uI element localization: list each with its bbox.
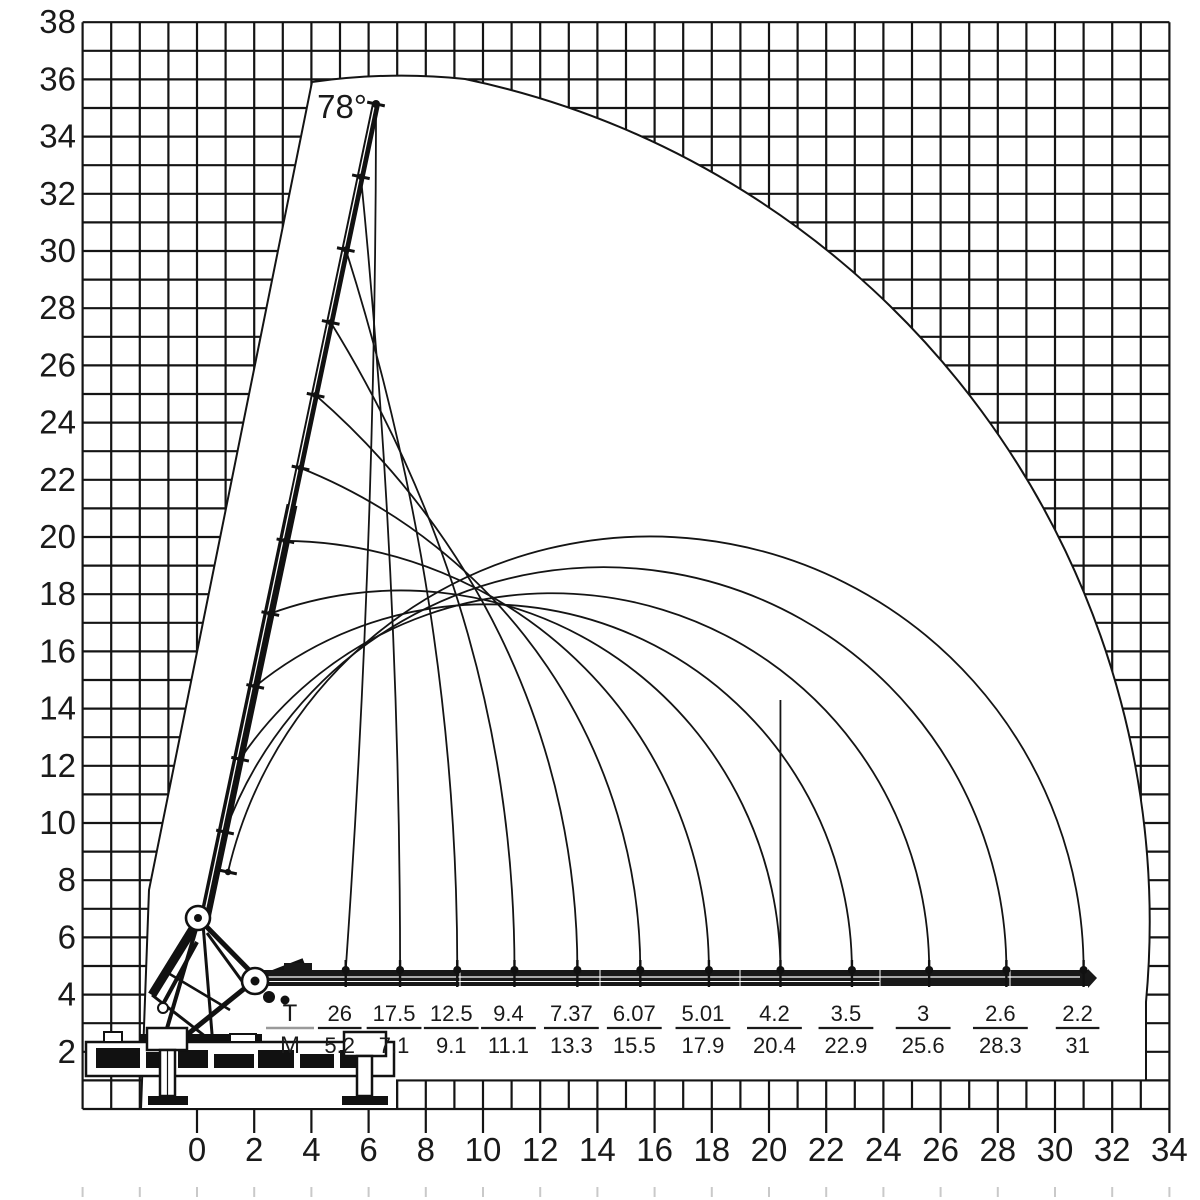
x-axis-tick-label: 16 <box>636 1131 673 1168</box>
boom-tip-dot <box>372 100 380 108</box>
chassis-machinery <box>178 1050 208 1068</box>
y-axis-tick-label: 30 <box>39 232 76 269</box>
outreach-value-metres: 7.1 <box>379 1033 410 1058</box>
y-axis-tick-label: 32 <box>39 175 76 212</box>
load-table-header-t: T <box>283 1000 298 1027</box>
load-value-tonnes: 9.4 <box>493 1001 524 1026</box>
x-axis-tick-label: 6 <box>359 1131 377 1168</box>
y-axis-tick-label: 2 <box>58 1033 76 1070</box>
y-axis-tick-label: 26 <box>39 346 76 383</box>
chassis-machinery <box>96 1048 140 1068</box>
outreach-value-metres: 13.3 <box>550 1033 593 1058</box>
y-axis-labels: 3836343230282624222018161412108642 <box>39 3 76 1070</box>
x-axis-tick-label: 20 <box>751 1131 788 1168</box>
cylinder-anchor-pin <box>158 1003 168 1013</box>
x-axis-tick-label: 26 <box>922 1131 959 1168</box>
outreach-dot <box>925 966 933 974</box>
boom-section-dot <box>343 246 349 252</box>
boom-section-dot <box>252 683 258 689</box>
y-axis-tick-label: 14 <box>39 690 76 727</box>
outreach-value-metres: 25.6 <box>902 1033 945 1058</box>
y-axis-tick-label: 36 <box>39 60 76 97</box>
x-axis-tick-label: 2 <box>245 1131 263 1168</box>
load-value-tonnes: 2.6 <box>985 1001 1016 1026</box>
x-axis-tick-label: 4 <box>302 1131 320 1168</box>
boom-section-dot <box>225 869 231 875</box>
outreach-value-metres: 9.1 <box>436 1033 467 1058</box>
knuckle-pin-center <box>251 977 260 986</box>
y-axis-tick-label: 34 <box>39 118 76 155</box>
outreach-dot <box>1080 966 1088 974</box>
outreach-dot <box>573 966 581 974</box>
boom-section-dot <box>297 465 303 471</box>
load-value-tonnes: 17.5 <box>373 1001 416 1026</box>
load-value-tonnes: 2.2 <box>1062 1001 1093 1026</box>
y-axis-tick-label: 38 <box>39 3 76 40</box>
outreach-dot <box>636 966 644 974</box>
outreach-value-metres: 28.3 <box>979 1033 1022 1058</box>
y-axis-tick-label: 22 <box>39 461 76 498</box>
angle-label-group: 78° <box>317 88 367 125</box>
x-axis-tick-label: 0 <box>188 1131 206 1168</box>
outreach-dot <box>705 966 713 974</box>
jib-boom <box>258 970 1088 986</box>
outreach-value-metres: 11.1 <box>488 1033 529 1058</box>
x-axis-tick-label: 32 <box>1094 1131 1131 1168</box>
y-axis-tick-label: 20 <box>39 518 76 555</box>
outrigger-right-jack <box>357 1056 372 1096</box>
load-value-tonnes: 3 <box>917 1001 929 1026</box>
x-axis-tick-label: 24 <box>865 1131 902 1168</box>
chassis-machinery <box>214 1054 254 1068</box>
outreach-value-metres: 17.9 <box>682 1033 725 1058</box>
x-axis-tick-label: 12 <box>522 1131 559 1168</box>
boom-section-dot <box>358 174 364 180</box>
load-value-tonnes: 4.2 <box>759 1001 790 1026</box>
crane-working-range-diagram: 78°3836343230282624222018161412108642024… <box>0 0 1200 1200</box>
x-axis-tick-label: 18 <box>693 1131 730 1168</box>
y-axis-tick-label: 8 <box>58 861 76 898</box>
x-axis-tick-label: 10 <box>465 1131 502 1168</box>
outreach-dot <box>453 966 461 974</box>
x-axis-tick-label: 14 <box>579 1131 616 1168</box>
x-axis-tick-label: 8 <box>417 1131 435 1168</box>
outreach-value-metres: 5.2 <box>324 1033 355 1058</box>
boom-section-dot <box>267 610 273 616</box>
boom-section-dot <box>328 319 334 325</box>
y-axis-tick-label: 12 <box>39 747 76 784</box>
boom-angle-label: 78° <box>317 88 367 125</box>
x-axis-tick-label: 28 <box>979 1131 1016 1168</box>
load-value-tonnes: 7.37 <box>550 1001 593 1026</box>
boom-section-dot <box>282 538 288 544</box>
x-axis-labels: 0246810121416182022242628303234 <box>188 1109 1188 1168</box>
boom-section-dot <box>222 829 228 835</box>
outreach-dot <box>342 966 350 974</box>
outreach-value-metres: 15.5 <box>613 1033 656 1058</box>
boom-section-dot <box>237 756 243 762</box>
x-axis-tick-label: 22 <box>808 1131 845 1168</box>
outrigger-right-foot <box>342 1096 388 1105</box>
load-value-tonnes: 12.5 <box>430 1001 473 1026</box>
x-axis-tick-label: 30 <box>1037 1131 1074 1168</box>
load-value-tonnes: 26 <box>327 1001 351 1026</box>
load-value-tonnes: 3.5 <box>831 1001 862 1026</box>
y-axis-tick-label: 4 <box>58 976 76 1013</box>
y-axis-tick-label: 18 <box>39 575 76 612</box>
chassis-detail-2 <box>230 1034 256 1042</box>
load-table-header-m: M <box>280 1032 300 1059</box>
jib-heel-block <box>284 963 312 971</box>
y-axis-tick-label: 16 <box>39 632 76 669</box>
y-axis-tick-label: 10 <box>39 804 76 841</box>
hook-pulley <box>263 991 275 1003</box>
outreach-dot <box>776 966 784 974</box>
outreach-value-metres: 31 <box>1065 1033 1089 1058</box>
outreach-value-metres: 20.4 <box>753 1033 796 1058</box>
outrigger-left-box <box>147 1028 187 1050</box>
outrigger-left-foot <box>148 1096 188 1105</box>
y-axis-tick-label: 6 <box>58 918 76 955</box>
crane-load-diagram-page: 78°3836343230282624222018161412108642024… <box>0 0 1200 1200</box>
outreach-dot <box>396 966 404 974</box>
main-pivot-center <box>194 914 202 922</box>
x-axis-tick-label: 34 <box>1151 1131 1188 1168</box>
boom-section-dot <box>312 392 318 398</box>
outreach-dot <box>848 966 856 974</box>
bottom-faint-marks <box>83 1187 1170 1197</box>
y-axis-tick-label: 28 <box>39 289 76 326</box>
chassis-detail <box>104 1032 122 1042</box>
load-value-tonnes: 5.01 <box>682 1001 725 1026</box>
outreach-value-metres: 22.9 <box>825 1033 868 1058</box>
y-axis-tick-label: 24 <box>39 404 76 441</box>
outreach-dot <box>1002 966 1010 974</box>
outreach-dot <box>510 966 518 974</box>
load-value-tonnes: 6.07 <box>613 1001 656 1026</box>
